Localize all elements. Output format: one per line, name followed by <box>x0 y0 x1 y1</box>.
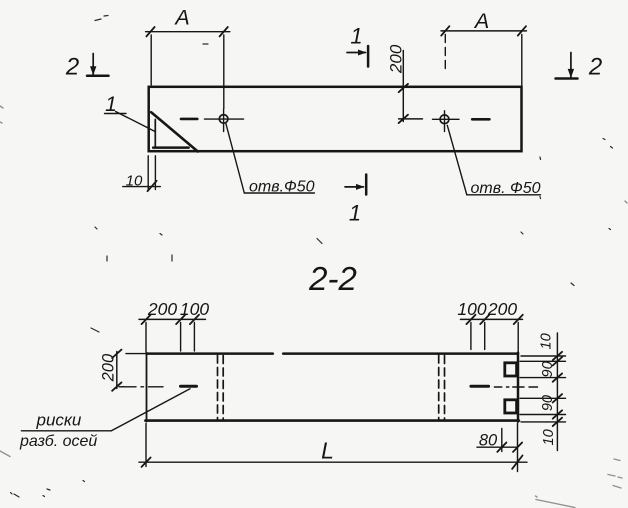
svg-text:2: 2 <box>65 54 79 81</box>
svg-text:разб. осей: разб. осей <box>19 433 97 450</box>
svg-text:1: 1 <box>350 24 362 49</box>
svg-text:риски: риски <box>36 411 82 430</box>
svg-text:2-2: 2-2 <box>308 260 357 297</box>
svg-text:10: 10 <box>126 173 143 190</box>
svg-text:отв.Ф50: отв.Ф50 <box>249 179 315 196</box>
svg-text:90: 90 <box>540 395 556 411</box>
svg-text:1: 1 <box>349 201 361 226</box>
svg-text:10: 10 <box>541 429 557 445</box>
svg-text:200: 200 <box>147 299 177 319</box>
svg-text:отв. Ф50: отв. Ф50 <box>471 180 541 197</box>
svg-text:L: L <box>321 438 334 464</box>
svg-text:100: 100 <box>457 299 486 319</box>
svg-text:200: 200 <box>387 44 406 74</box>
svg-text:90: 90 <box>540 361 556 377</box>
svg-text:200: 200 <box>99 353 117 382</box>
svg-text:1: 1 <box>105 93 117 116</box>
svg-text:80: 80 <box>479 432 498 450</box>
svg-text:10: 10 <box>539 333 555 349</box>
svg-text:A: A <box>473 9 489 33</box>
svg-text:200: 200 <box>487 299 517 319</box>
svg-text:100: 100 <box>180 299 209 319</box>
svg-text:A: A <box>173 6 189 30</box>
svg-text:2: 2 <box>588 54 602 81</box>
